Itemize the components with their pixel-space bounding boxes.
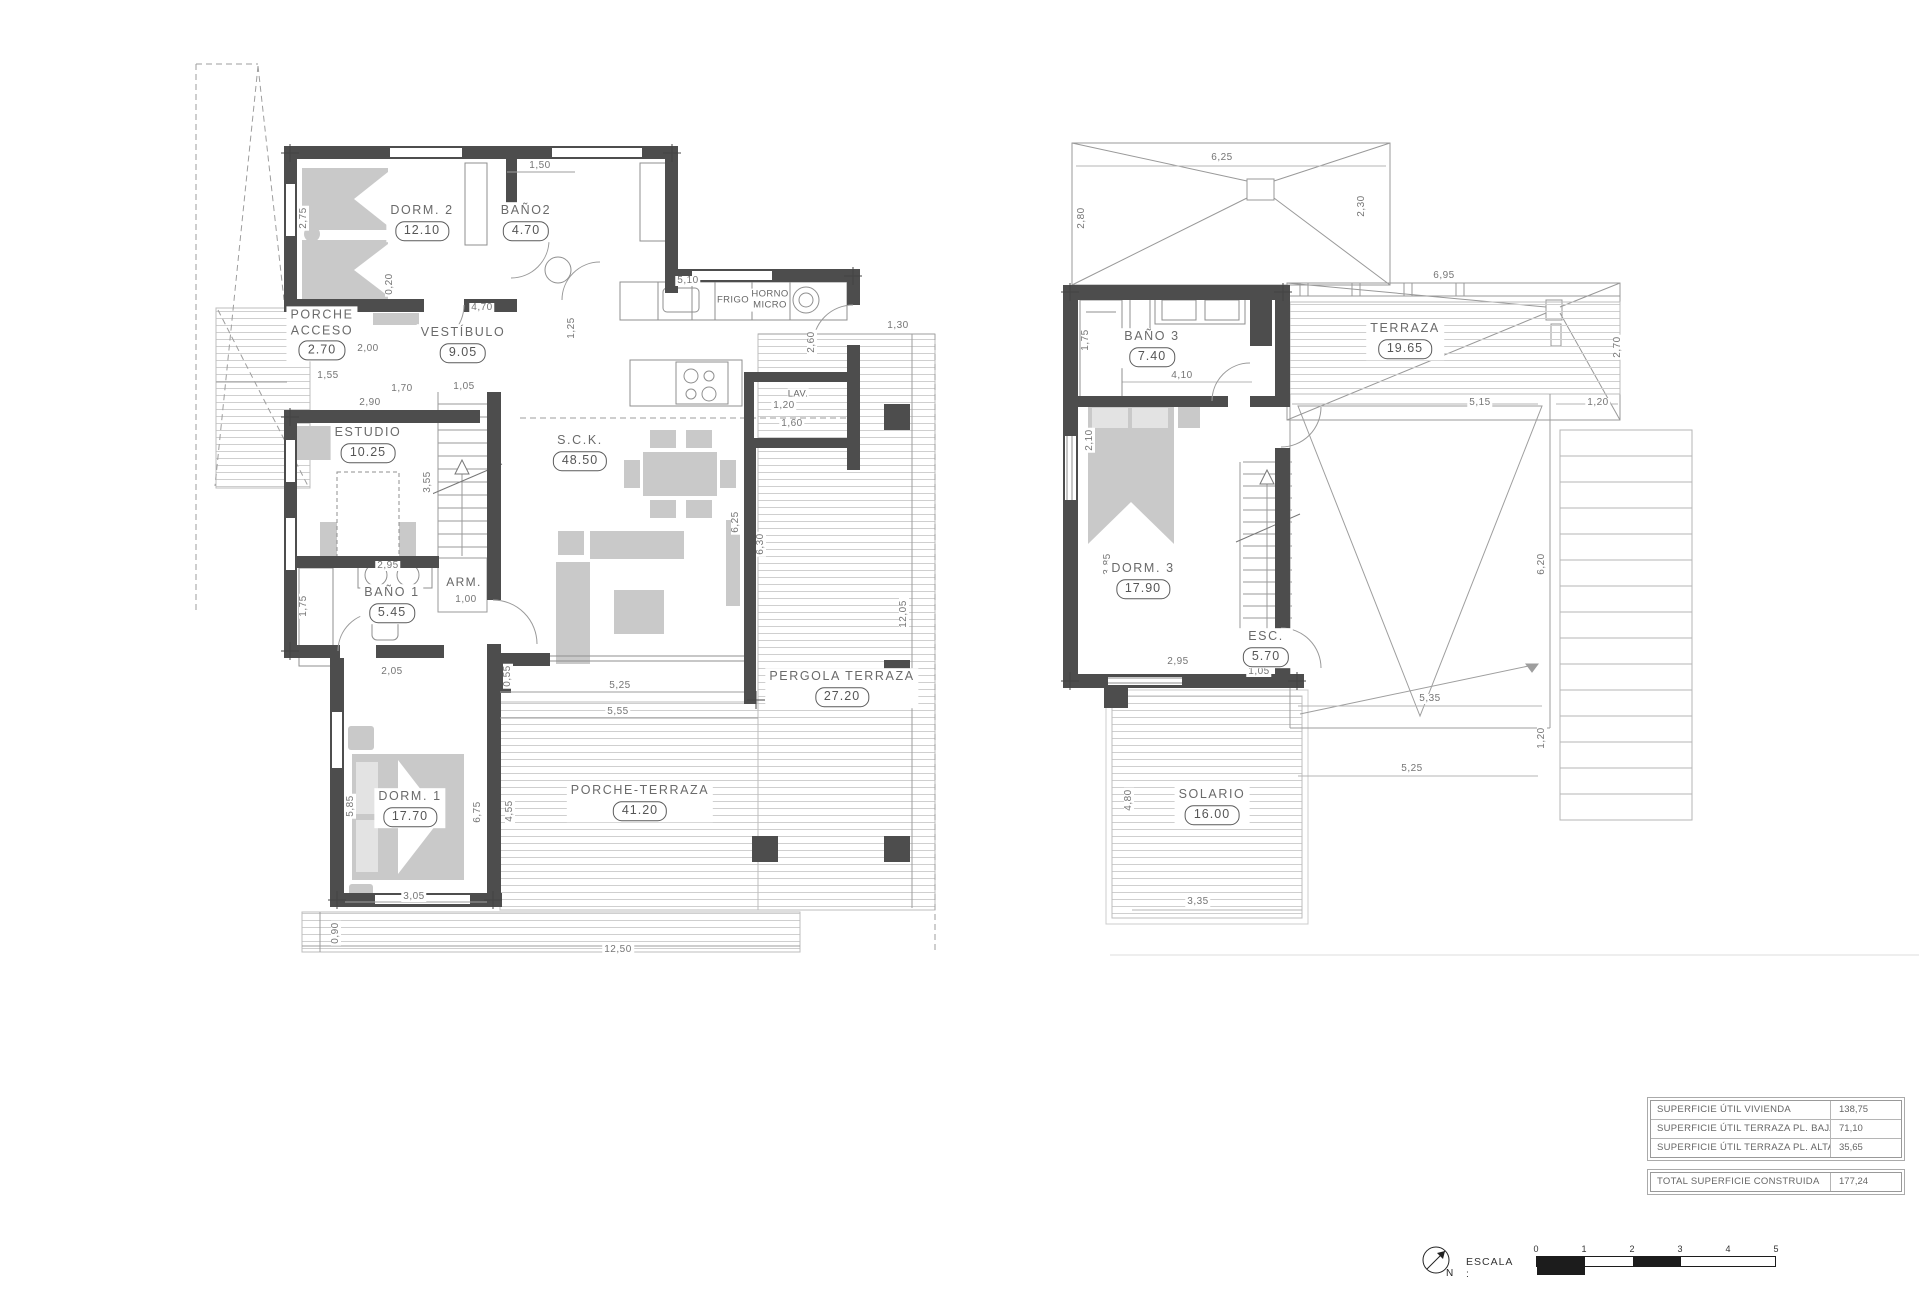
- upper-dim-label-5-25: 5,25: [1399, 764, 1424, 774]
- ground-room-label-estudio: ESTUDIO10.25: [331, 424, 406, 464]
- upper-dim-label-3-35: 3,35: [1185, 897, 1210, 907]
- ground-dim-label-1-00: 1,00: [453, 595, 478, 605]
- upper-room-label-esc: ESC.5.70: [1239, 628, 1293, 668]
- ground-dim-label-1-55: 1,55: [315, 371, 340, 381]
- ground-dim-label-1-05: 1,05: [451, 382, 476, 392]
- total-value: 177,24: [1830, 1173, 1901, 1191]
- ground-dim-label-1-25: 1,25: [567, 315, 577, 340]
- scale-tick: 5: [1773, 1244, 1778, 1254]
- row-value: 35,65: [1830, 1139, 1901, 1157]
- room-area-value: 41.20: [613, 801, 667, 821]
- area-summary-table: SUPERFICIE ÚTIL VIVIENDA 138,75 SUPERFIC…: [1650, 1100, 1902, 1206]
- ground-dim-label-5-85: 5,85: [346, 793, 356, 818]
- table-row: SUPERFICIE ÚTIL TERRAZA PL. BAJA 71,10: [1651, 1120, 1901, 1139]
- room-name: PORCHE-TERRAZA: [571, 783, 709, 799]
- upper-dim-label-1-20: 1,20: [1585, 398, 1610, 408]
- room-area-value: 2.70: [299, 341, 345, 361]
- ground-label-horno-micro: HORNO MICRO: [751, 289, 788, 312]
- ground-dim-label-6-25: 6,25: [731, 509, 741, 534]
- room-area-value: 10.25: [341, 443, 395, 463]
- room-area-value: 48.50: [553, 451, 607, 471]
- ground-room-label-s-c-k: S.C.K.48.50: [549, 432, 611, 472]
- ground-dim-label-6-75: 6,75: [473, 799, 483, 824]
- scale-bar: N ESCALA : 0 1 2 3 4 5: [1418, 1240, 1462, 1284]
- room-name: PORCHE ACCESO: [290, 307, 353, 338]
- ground-dim-label-0-20: 0,20: [385, 271, 395, 296]
- ground-room-label-dorm-2: DORM. 212.10: [386, 202, 457, 242]
- room-name: TERRAZA: [1370, 321, 1440, 337]
- ground-dim-label-2-00: 2,00: [355, 344, 380, 354]
- scale-tick: 3: [1677, 1244, 1682, 1254]
- room-area-value: 12.10: [395, 221, 449, 241]
- scale-tick: 1: [1581, 1244, 1586, 1254]
- room-area-value: 27.20: [815, 687, 869, 707]
- drawing-sheet: PORCHE ACCESO2.70DORM. 212.10BAÑO24.70VE…: [0, 0, 1920, 1280]
- upper-room-label-dorm-3: DORM. 317.90: [1107, 560, 1178, 600]
- ground-dim-label-3-55: 3,55: [423, 469, 433, 494]
- ground-label-arm: ARM.: [446, 575, 482, 589]
- ground-dim-label-2-90: 2,90: [357, 398, 382, 408]
- scale-ruler: 0 1 2 3 4 5: [1536, 1256, 1776, 1267]
- table-row: SUPERFICIE ÚTIL VIVIENDA 138,75: [1651, 1101, 1901, 1120]
- upper-dim-label-6-20: 6,20: [1537, 551, 1547, 576]
- upper-dim-label-6-95: 6,95: [1431, 271, 1456, 281]
- room-name: SOLARIO: [1179, 787, 1246, 803]
- ground-dim-label-2-95: 2,95: [375, 561, 400, 571]
- row-label: SUPERFICIE ÚTIL TERRAZA PL. ALTA: [1651, 1139, 1830, 1157]
- room-area-value: 17.70: [383, 807, 437, 827]
- room-name: BAÑO 3: [1124, 329, 1179, 345]
- room-area-value: 17.90: [1116, 579, 1170, 599]
- scale-label: ESCALA :: [1466, 1256, 1513, 1280]
- row-value: 138,75: [1830, 1101, 1901, 1119]
- upper-dim-label-2-95: 2,95: [1165, 657, 1190, 667]
- ground-dim-label-1-50: 1,50: [527, 161, 552, 171]
- room-name: VESTÍBULO: [421, 325, 506, 341]
- ground-room-label-porche-terraza: PORCHE-TERRAZA41.20: [567, 782, 713, 822]
- upper-dim-label-1-75: 1,75: [1081, 327, 1091, 352]
- room-name: BAÑO 1: [364, 585, 419, 601]
- upper-dim-label-1-05: 1,05: [1246, 667, 1271, 677]
- ground-dim-label-0-90: 0,90: [331, 920, 341, 945]
- ground-dim-label-12-05: 12,05: [899, 598, 909, 630]
- ground-dim-label-12-50: 12,50: [602, 945, 634, 955]
- ground-room-label-ba-o-1: BAÑO 15.45: [360, 584, 423, 624]
- room-name: ESTUDIO: [335, 425, 402, 441]
- upper-dim-label-4-80: 4,80: [1124, 787, 1134, 812]
- scale-tick: 4: [1725, 1244, 1730, 1254]
- upper-dim-label-1-20: 1,20: [1537, 725, 1547, 750]
- room-name: DORM. 1: [378, 789, 441, 805]
- row-label: SUPERFICIE ÚTIL VIVIENDA: [1651, 1101, 1830, 1119]
- scale-segments: [1536, 1256, 1776, 1267]
- room-name: DORM. 2: [390, 203, 453, 219]
- upper-room-label-terraza: TERRAZA19.65: [1366, 320, 1444, 360]
- room-name: DORM. 3: [1111, 561, 1174, 577]
- ground-room-label-vest-bulo: VESTÍBULO9.05: [417, 324, 510, 364]
- upper-dim-label-2-30: 2,30: [1357, 193, 1367, 218]
- ground-dim-label-0-55: 0,55: [503, 663, 513, 688]
- upper-room-label-ba-o-3: BAÑO 37.40: [1120, 328, 1183, 368]
- ground-room-label-porche-acceso: PORCHE ACCESO2.70: [286, 306, 357, 361]
- upper-dim-label-5-15: 5,15: [1467, 398, 1492, 408]
- room-area-value: 5.45: [369, 603, 415, 623]
- room-area-value: 4.70: [503, 221, 549, 241]
- ground-dim-label-1-75: 1,75: [299, 593, 309, 618]
- upper-dim-label-2-70: 2,70: [1613, 334, 1623, 359]
- ground-dim-label-1-20: 1,20: [771, 401, 796, 411]
- ground-room-label-pergola-terraza: PERGOLA TERRAZA27.20: [765, 668, 918, 708]
- scale-tick: 2: [1629, 1244, 1634, 1254]
- upper-dim-label-4-10: 4,10: [1169, 371, 1194, 381]
- ground-label-frigo: FRIGO: [717, 294, 749, 305]
- room-area-value: 9.05: [440, 343, 486, 363]
- ground-room-label-dorm-1: DORM. 117.70: [374, 788, 445, 828]
- scale-tick: 0: [1533, 1244, 1538, 1254]
- ground-dim-label-2-60: 2,60: [807, 329, 817, 354]
- room-name: PERGOLA TERRAZA: [769, 669, 914, 685]
- total-surface-table: TOTAL SUPERFICIE CONSTRUIDA 177,24: [1650, 1172, 1902, 1192]
- room-area-value: 7.40: [1129, 347, 1175, 367]
- table-row-total: TOTAL SUPERFICIE CONSTRUIDA 177,24: [1651, 1173, 1901, 1191]
- ground-dim-label-4-70: 4,70: [469, 303, 494, 313]
- table-row: SUPERFICIE ÚTIL TERRAZA PL. ALTA 35,65: [1651, 1139, 1901, 1157]
- ground-dim-label-6-30: 6,30: [756, 531, 766, 556]
- label-layer: PORCHE ACCESO2.70DORM. 212.10BAÑO24.70VE…: [0, 0, 1920, 1280]
- ground-dim-label-2-05: 2,05: [379, 667, 404, 677]
- row-value: 71,10: [1830, 1120, 1901, 1138]
- north-label: N: [1446, 1268, 1453, 1279]
- ground-dim-label-5-10: 5,10: [675, 276, 700, 286]
- ground-dim-label-1-60: 1,60: [779, 419, 804, 429]
- total-label: TOTAL SUPERFICIE CONSTRUIDA: [1651, 1173, 1830, 1191]
- upper-dim-label-2-80: 2,80: [1077, 205, 1087, 230]
- ground-dim-label-1-70: 1,70: [389, 384, 414, 394]
- room-name: BAÑO2: [501, 203, 551, 219]
- ground-dim-label-2-75: 2,75: [299, 205, 309, 230]
- upper-dim-label-5-35: 5,35: [1417, 694, 1442, 704]
- ground-dim-label-3-05: 3,05: [401, 892, 426, 902]
- upper-room-label-solario: SOLARIO16.00: [1175, 786, 1250, 826]
- room-area-value: 16.00: [1185, 805, 1239, 825]
- upper-dim-label-6-25: 6,25: [1209, 153, 1234, 163]
- ground-room-label-ba-o2: BAÑO24.70: [497, 202, 555, 242]
- room-name: S.C.K.: [553, 433, 607, 449]
- ground-dim-label-5-55: 5,55: [605, 707, 630, 717]
- ground-label-lav: LAV.: [788, 388, 809, 399]
- ground-dim-label-4-55: 4,55: [505, 798, 515, 823]
- ground-dim-label-1-30: 1,30: [885, 321, 910, 331]
- useful-surface-table: SUPERFICIE ÚTIL VIVIENDA 138,75 SUPERFIC…: [1650, 1100, 1902, 1158]
- room-area-value: 5.70: [1243, 647, 1289, 667]
- upper-dim-label-2-10: 2,10: [1085, 427, 1095, 452]
- room-name: ESC.: [1243, 629, 1289, 645]
- ground-dim-label-5-25: 5,25: [607, 681, 632, 691]
- north-compass-icon: N: [1418, 1240, 1462, 1284]
- row-label: SUPERFICIE ÚTIL TERRAZA PL. BAJA: [1651, 1120, 1830, 1138]
- room-area-value: 19.65: [1378, 339, 1432, 359]
